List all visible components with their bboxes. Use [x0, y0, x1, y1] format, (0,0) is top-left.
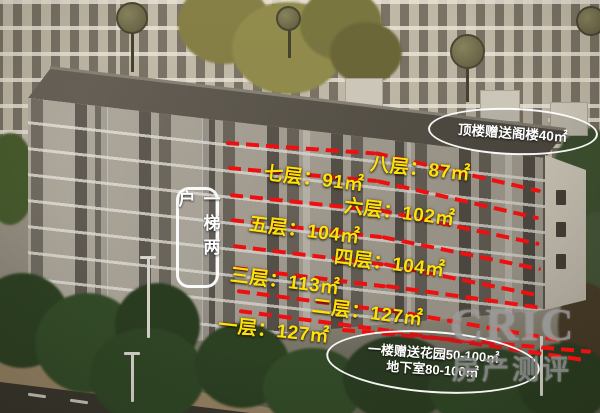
building-number-sign — [116, 2, 148, 34]
gable-window — [556, 222, 566, 237]
gable-window — [556, 254, 566, 269]
sign-pole — [131, 30, 134, 72]
watermark-brand: CRIC — [450, 298, 576, 351]
tree — [330, 22, 402, 84]
building-number-sign — [276, 6, 301, 31]
gable-window — [556, 190, 566, 205]
model-photo: 八层：87㎡ 七层：91㎡ 六层：102㎡ 五层：104㎡ 四层：104㎡ 三层… — [0, 0, 600, 413]
attic-note-text: 顶楼赠送阁楼40㎡ — [458, 118, 569, 146]
sign-pole — [288, 28, 291, 58]
unit-type-box: 一梯两户 — [176, 187, 219, 288]
building-number-sign — [450, 34, 485, 69]
lamp-arm — [124, 352, 140, 355]
sign-pole — [466, 66, 469, 102]
unit-type-label: 一梯两户 — [173, 190, 223, 285]
lamp-post — [147, 256, 150, 338]
watermark-subtitle: 房产测评 — [452, 348, 572, 387]
building-number-sign — [576, 6, 600, 36]
tree — [90, 328, 205, 413]
lamp-post — [131, 352, 134, 402]
lamp-arm — [140, 256, 156, 259]
